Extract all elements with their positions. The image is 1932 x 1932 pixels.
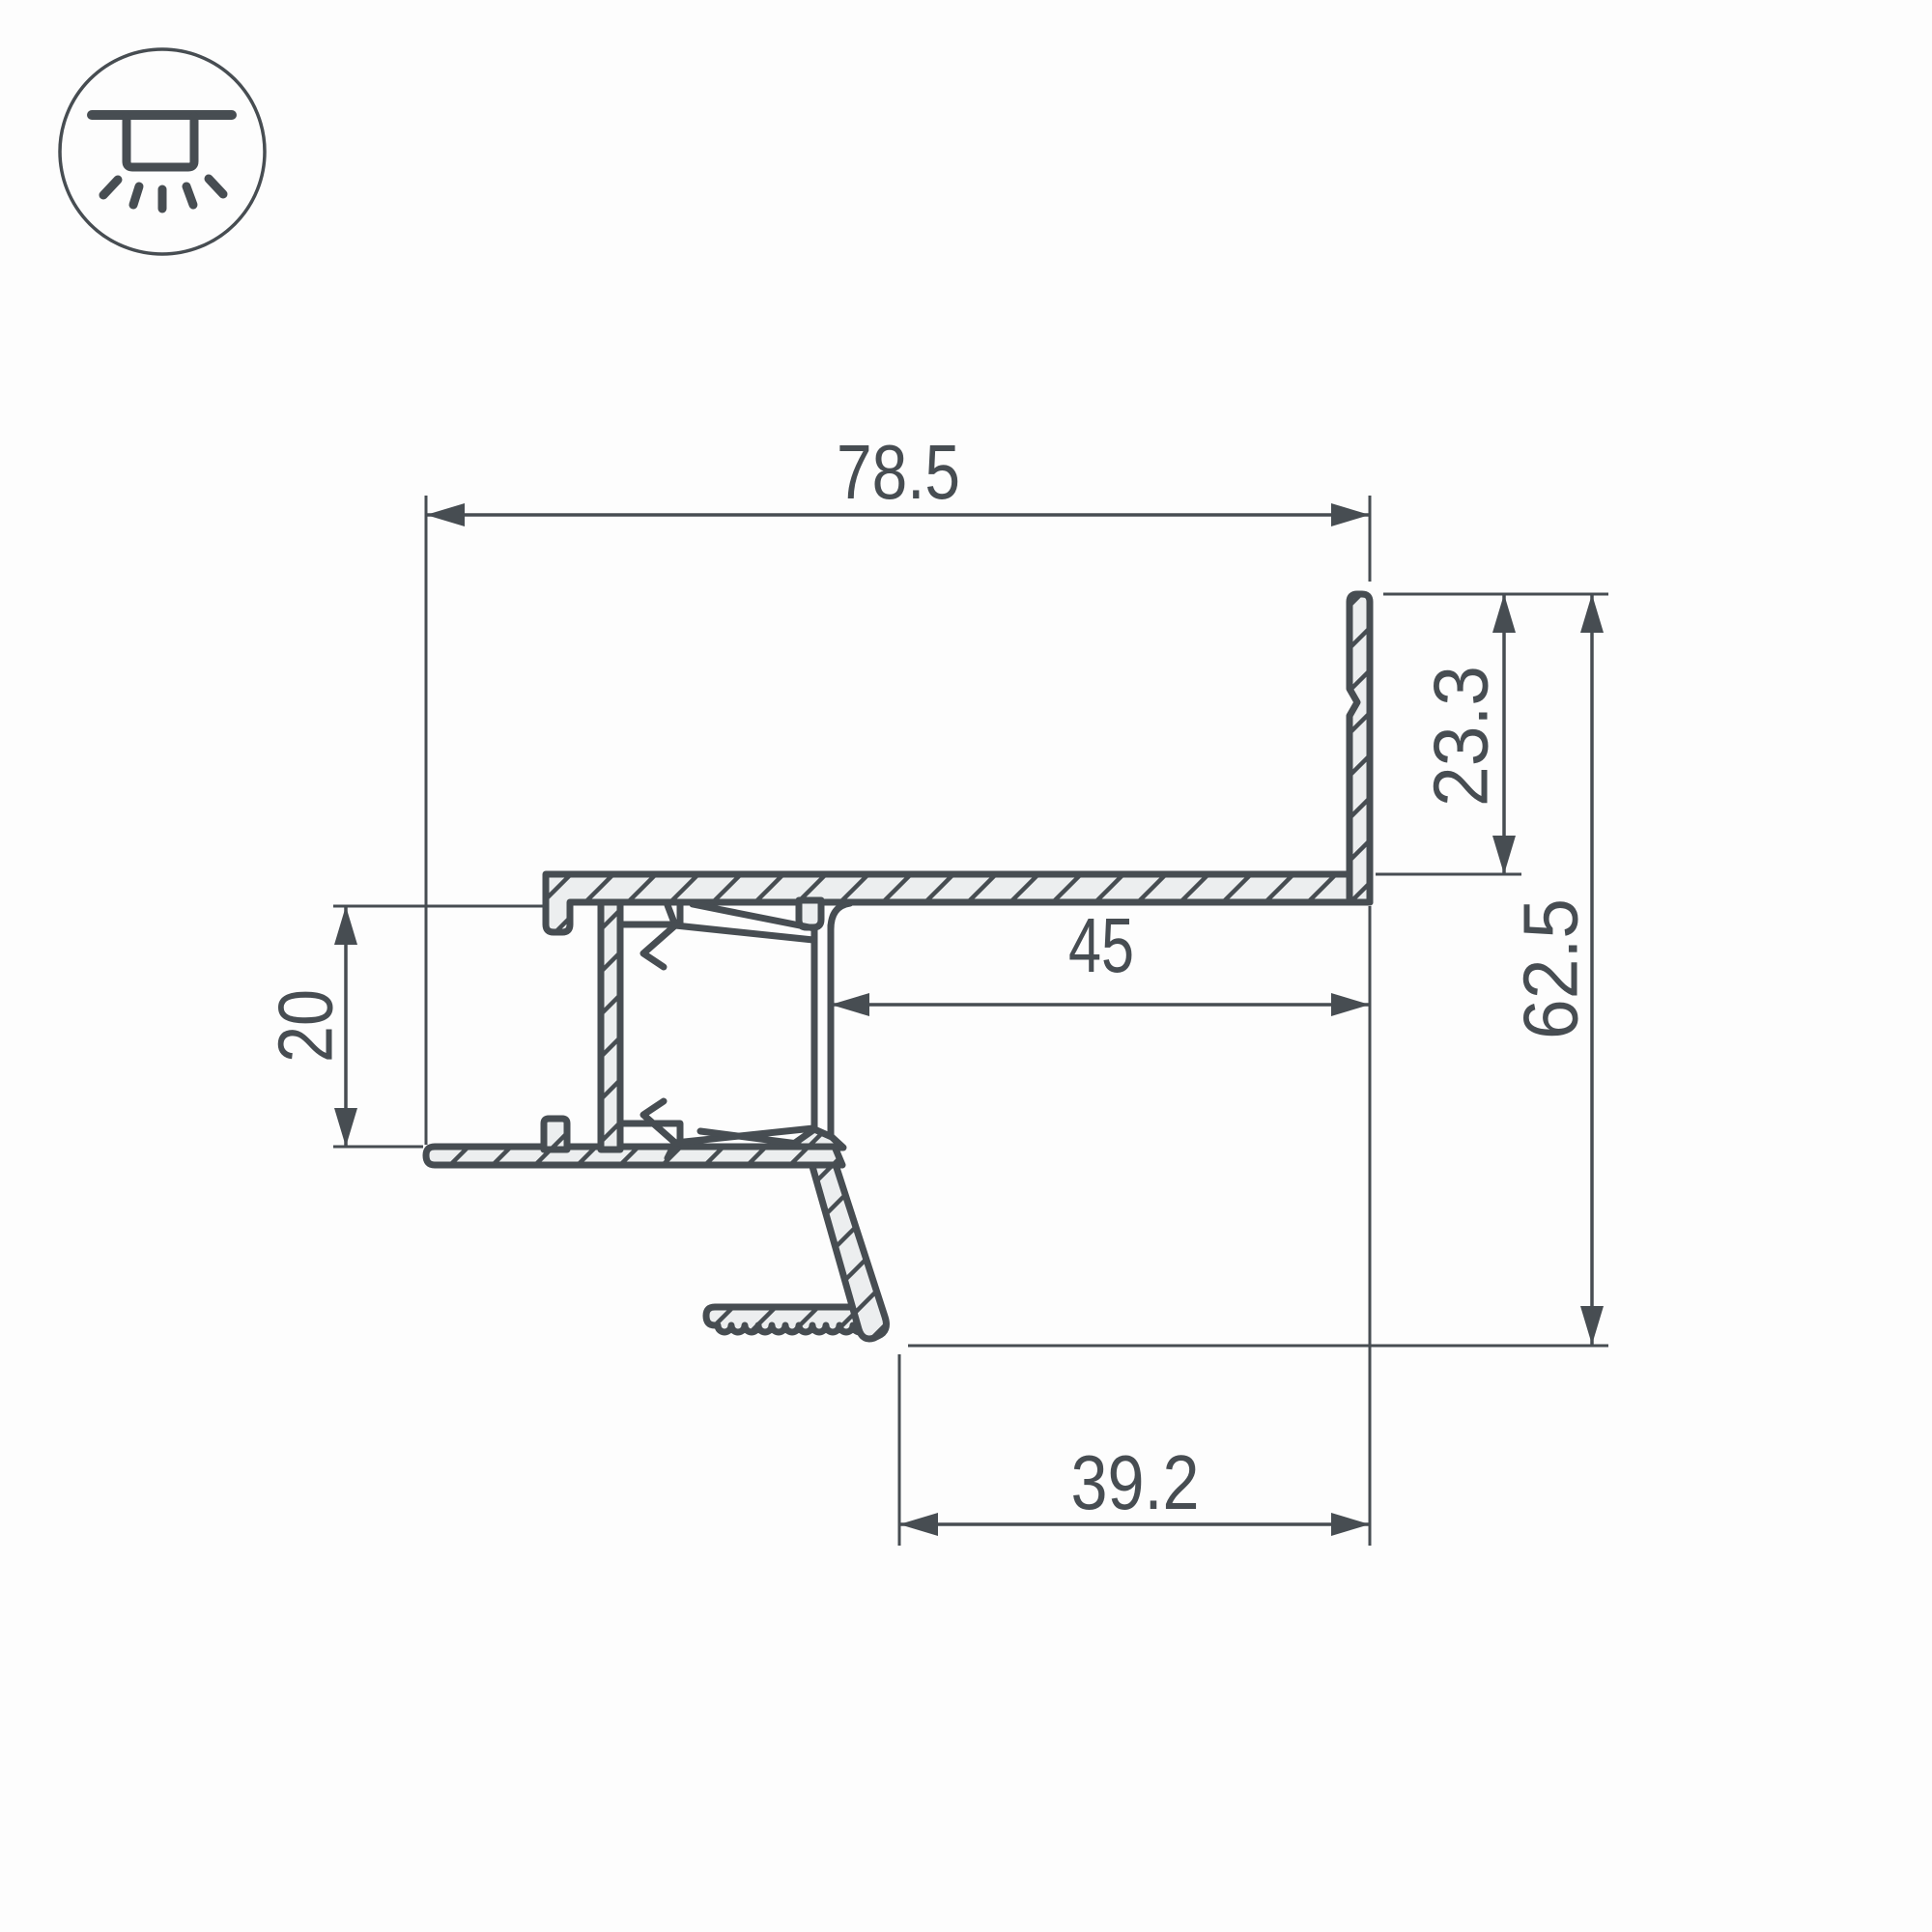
- dim-label-overall-height: 62.5: [1508, 898, 1594, 1039]
- diffuser-slot: [814, 903, 850, 1136]
- dim-label-bottom-offset: 39.2: [1071, 1439, 1200, 1525]
- dim-label-inner-width: 45: [1068, 902, 1134, 988]
- extension-lines: [333, 496, 1608, 1546]
- dim-overall-width: 78.5: [426, 429, 1370, 526]
- profile-flange: [1350, 594, 1370, 902]
- arrow-right-icon: [1331, 993, 1370, 1016]
- arrow-left-icon: [831, 993, 869, 1016]
- icon-light-rays: [103, 179, 223, 209]
- arrow-left-icon: [426, 503, 465, 526]
- profile-drawing-canvas: 78.5 45 39.2 20 23.3 62.5: [0, 0, 1932, 1932]
- arrow-up-icon: [334, 906, 357, 945]
- icon-housing: [127, 117, 194, 167]
- dim-label-overall-width: 78.5: [837, 429, 960, 515]
- recessed-downlight-icon: [60, 49, 265, 254]
- profile-serrated-foot: [706, 1307, 867, 1332]
- arrow-right-icon: [1331, 503, 1370, 526]
- arrow-left-icon: [899, 1513, 938, 1536]
- dim-label-slot-height: 20: [263, 989, 349, 1063]
- dim-flange-drop: 23.3: [1418, 594, 1517, 874]
- icon-circle: [60, 49, 265, 254]
- profile-bottom-tab: [544, 1119, 567, 1150]
- profile-bottom-plate: [426, 1147, 842, 1165]
- spring-clip-top: [643, 904, 814, 967]
- dim-inner-width: 45: [831, 902, 1370, 1016]
- dim-bottom-offset: 39.2: [899, 1439, 1370, 1536]
- dim-label-flange-drop: 23.3: [1418, 666, 1504, 807]
- dim-overall-height: 62.5: [1508, 594, 1605, 1345]
- arrow-down-icon: [1492, 836, 1516, 874]
- arrow-up-icon: [1580, 594, 1604, 633]
- dim-slot-height: 20: [263, 906, 358, 1147]
- profile-divider-wall: [601, 896, 620, 1150]
- profile-cross-section: [426, 594, 1370, 1339]
- arrow-down-icon: [334, 1108, 357, 1147]
- arrow-right-icon: [1331, 1513, 1370, 1536]
- arrow-up-icon: [1492, 594, 1516, 633]
- arrow-down-icon: [1580, 1306, 1604, 1345]
- profile-drawing-page: 78.5 45 39.2 20 23.3 62.5: [0, 0, 1932, 1932]
